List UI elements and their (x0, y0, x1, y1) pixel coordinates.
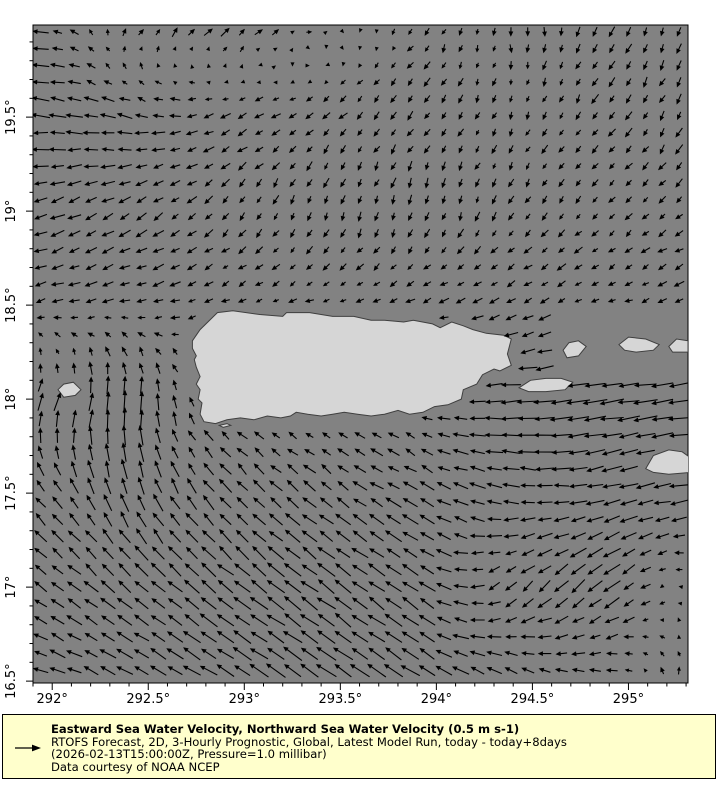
y-axis-tick-label: 17° (4, 576, 19, 599)
x-axis-tick-label: 293.5° (318, 692, 362, 707)
x-axis-tick-label: 294.5° (511, 692, 555, 707)
x-axis-tick-label: 292° (37, 692, 68, 707)
x-axis-tick-label: 292.5° (126, 692, 170, 707)
legend-box: Eastward Sea Water Velocity, Northward S… (2, 714, 716, 779)
y-axis-tick-label: 18.5° (4, 287, 19, 322)
x-axis-tick-label: 295° (613, 692, 644, 707)
ocean-current-map: 292°292.5°293°293.5°294°294.5°295°16.5°1… (0, 0, 720, 712)
legend-title: Eastward Sea Water Velocity, Northward S… (51, 723, 709, 736)
y-axis-tick-label: 18° (4, 388, 19, 411)
reference-arrow-icon (14, 742, 44, 754)
x-axis-tick-label: 293° (229, 692, 260, 707)
y-axis-tick-label: 19° (4, 200, 19, 223)
y-axis-tick-label: 17.5° (4, 475, 19, 510)
current-map-page: 292°292.5°293°293.5°294°294.5°295°16.5°1… (0, 0, 720, 800)
y-axis-tick-label: 16.5° (4, 663, 19, 698)
legend-credit: Data courtesy of NOAA NCEP (51, 761, 709, 774)
y-axis-tick-label: 19.5° (4, 99, 19, 134)
legend-text-block: Eastward Sea Water Velocity, Northward S… (51, 723, 709, 773)
x-axis-tick-label: 294° (421, 692, 452, 707)
legend-timestamp: (2026-02-13T15:00:00Z, Pressure=1.0 mill… (51, 748, 709, 761)
